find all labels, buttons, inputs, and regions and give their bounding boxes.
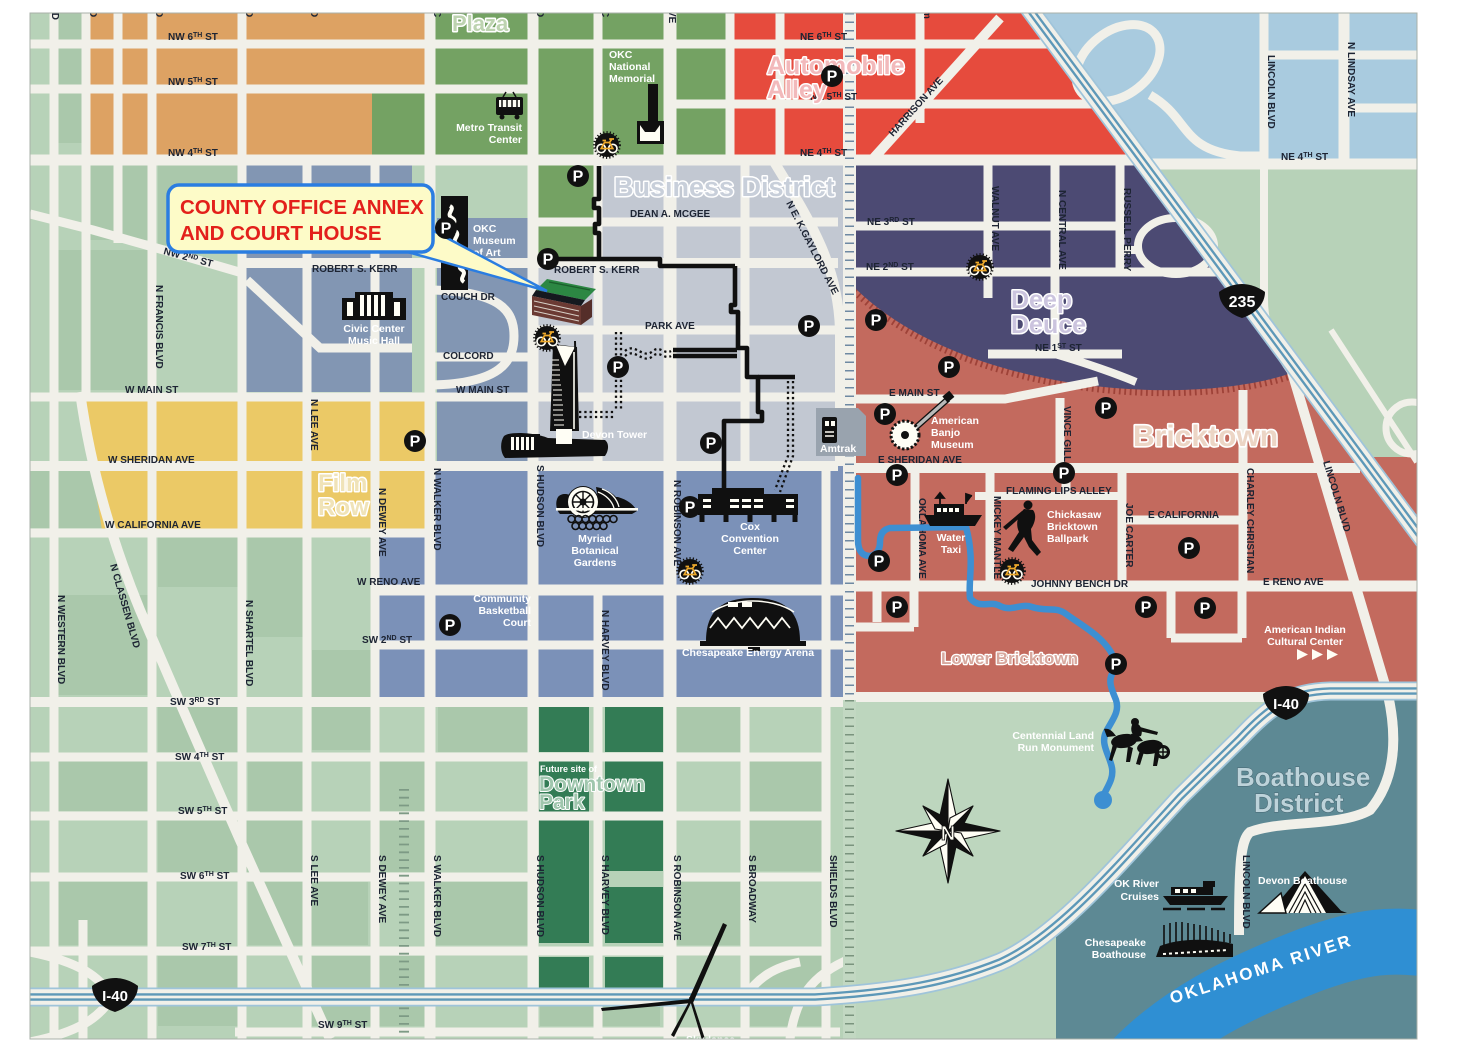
svg-text:Row: Row [318, 494, 369, 521]
svg-text:Lower Bricktown: Lower Bricktown [941, 649, 1078, 668]
svg-text:VINCE GILL: VINCE GILL [1061, 406, 1072, 462]
svg-text:N DEWEY AVE: N DEWEY AVE [376, 488, 387, 557]
svg-text:N FRANCIS BLVD: N FRANCIS BLVD [153, 285, 164, 369]
svg-text:Devon Boathouse: Devon Boathouse [1258, 875, 1347, 887]
svg-text:COUCH DR: COUCH DR [441, 292, 496, 303]
svg-text:Park: Park [539, 791, 585, 814]
svg-text:S HUDSON BLVD: S HUDSON BLVD [534, 465, 545, 547]
svg-text:Skydance: Skydance [686, 1034, 735, 1046]
svg-text:Myriad: Myriad [578, 533, 612, 545]
svg-text:D: D [153, 10, 164, 17]
svg-text:E SHERIDAN AVE: E SHERIDAN AVE [878, 455, 962, 466]
svg-text:S WALKER BLVD: S WALKER BLVD [431, 855, 442, 937]
svg-text:S HARVEY BLVD: S HARVEY BLVD [599, 855, 610, 935]
svg-text:VE: VE [666, 10, 677, 24]
svg-text:Taxi: Taxi [941, 544, 961, 556]
svg-text:District: District [1254, 788, 1344, 818]
svg-text:S DEWEY AVE: S DEWEY AVE [376, 855, 387, 923]
svg-text:W SHERIDAN AVE: W SHERIDAN AVE [108, 455, 195, 466]
svg-text:Cox: Cox [740, 521, 760, 533]
svg-text:N SHARTEL BLVD: N SHARTEL BLVD [243, 600, 254, 686]
svg-text:Museum: Museum [931, 439, 974, 451]
svg-text:N ROBINSON AVE: N ROBINSON AVE [671, 480, 682, 566]
svg-text:N LEE AVE: N LEE AVE [308, 399, 319, 451]
svg-text:LINCOLN BLVD: LINCOLN BLVD [1265, 55, 1276, 129]
svg-text:/D: /D [49, 10, 60, 20]
svg-text:National: National [609, 61, 651, 73]
svg-text:Banjo: Banjo [931, 427, 960, 439]
svg-text:Alley: Alley [767, 76, 827, 104]
svg-text:OKC: OKC [609, 49, 633, 61]
svg-text:S LEE AVE: S LEE AVE [308, 855, 319, 906]
svg-text:S ROBINSON AVE: S ROBINSON AVE [671, 855, 682, 941]
svg-text:S HUDSON BLVD: S HUDSON BLVD [534, 855, 545, 937]
svg-text:Court: Court [503, 617, 531, 629]
svg-text:Chesapeake: Chesapeake [1085, 937, 1146, 949]
svg-text:Community: Community [473, 593, 531, 605]
svg-text:NW 6TH ST: NW 6TH ST [168, 32, 218, 43]
svg-text:D: D [243, 10, 254, 17]
svg-text:Centennial Land: Centennial Land [1012, 730, 1094, 742]
svg-text:E MAIN ST: E MAIN ST [889, 388, 940, 399]
svg-text:NW 4TH ST: NW 4TH ST [168, 148, 218, 159]
svg-text:Civic Center: Civic Center [343, 323, 404, 335]
svg-text:W MAIN ST: W MAIN ST [456, 385, 509, 396]
svg-text:Chesapeake Energy Arena: Chesapeake Energy Arena [682, 647, 814, 659]
svg-text:N WALKER BLVD: N WALKER BLVD [431, 468, 442, 551]
svg-text:N: N [941, 823, 955, 845]
svg-text:OK River: OK River [1114, 878, 1159, 890]
svg-text:I-40: I-40 [1273, 696, 1299, 713]
svg-text:Cruises: Cruises [1120, 891, 1159, 903]
svg-text:Plaza: Plaza [452, 11, 509, 36]
svg-text:Botanical: Botanical [571, 545, 618, 557]
svg-text:W RENO AVE: W RENO AVE [357, 577, 421, 588]
svg-text:Cultural Center: Cultural Center [1267, 636, 1343, 648]
svg-text:COLCORD: COLCORD [443, 351, 494, 362]
svg-text:OKLAHOMA AVE: OKLAHOMA AVE [916, 498, 927, 579]
svg-text:N WESTERN BLVD: N WESTERN BLVD [55, 595, 66, 684]
svg-text:Gardens: Gardens [574, 557, 617, 569]
svg-text:Boathouse: Boathouse [1092, 949, 1146, 961]
svg-text:Film: Film [318, 470, 367, 497]
svg-text:E CALIFORNIA: E CALIFORNIA [1148, 510, 1219, 521]
svg-text:Devon Tower: Devon Tower [582, 429, 647, 441]
svg-text:JOE CARTER: JOE CARTER [1123, 503, 1134, 568]
svg-text:C: C [599, 10, 610, 17]
svg-text:N LINDSAY AVE: N LINDSAY AVE [1345, 42, 1356, 117]
svg-text:m: m [921, 10, 932, 19]
svg-text:Amtrak: Amtrak [820, 443, 856, 455]
svg-text:S BROADWAY: S BROADWAY [746, 855, 757, 923]
svg-text:D: D [87, 10, 98, 17]
svg-text:FLAMING LIPS ALLEY: FLAMING LIPS ALLEY [1006, 486, 1112, 497]
svg-text:Run Monument: Run Monument [1018, 742, 1095, 754]
svg-text:CHARLEY CHRISTIAN: CHARLEY CHRISTIAN [1244, 468, 1255, 573]
svg-text:ROBERT S. KERR: ROBERT S. KERR [312, 264, 398, 275]
svg-text:I-40: I-40 [102, 988, 128, 1005]
svg-text:JOHNNY BENCH DR: JOHNNY BENCH DR [1031, 579, 1129, 590]
svg-text:American: American [931, 415, 979, 427]
svg-text:NW 5TH ST: NW 5TH ST [168, 77, 218, 88]
svg-text:N CENTRAL AVE: N CENTRAL AVE [1056, 190, 1067, 270]
svg-text:Water: Water [937, 532, 966, 544]
svg-text:N HARVEY BLVD: N HARVEY BLVD [599, 610, 610, 691]
svg-text:Bricktown: Bricktown [1133, 420, 1278, 453]
svg-text:W CALIFORNIA AVE: W CALIFORNIA AVE [105, 520, 201, 531]
svg-text:W MAIN ST: W MAIN ST [125, 385, 178, 396]
svg-text:Center: Center [733, 545, 766, 557]
svg-text:WALNUT AVE: WALNUT AVE [989, 186, 1000, 251]
svg-text:MICKEY MANTLE: MICKEY MANTLE [991, 496, 1002, 579]
svg-text:American Indian: American Indian [1264, 624, 1346, 636]
svg-text:D: D [534, 10, 545, 17]
svg-text:Deep: Deep [1011, 286, 1072, 314]
svg-text:ROBERT S. KERR: ROBERT S. KERR [554, 265, 640, 276]
svg-text:LINCOLN BLVD: LINCOLN BLVD [1240, 855, 1251, 929]
svg-text:Music Hall: Music Hall [348, 335, 400, 347]
svg-text:Ballpark: Ballpark [1047, 533, 1089, 545]
svg-text:D: D [308, 10, 319, 17]
svg-text:Bricktown: Bricktown [1047, 521, 1098, 533]
svg-text:PARK AVE: PARK AVE [645, 321, 695, 332]
svg-text:Metro Transit: Metro Transit [456, 122, 522, 134]
svg-text:235: 235 [1229, 294, 1256, 311]
svg-text:C: C [431, 10, 442, 17]
svg-text:Convention: Convention [721, 533, 779, 545]
svg-text:Center: Center [489, 134, 522, 146]
svg-text:AND COURT HOUSE: AND COURT HOUSE [180, 222, 382, 245]
svg-text:DEAN A. MCGEE: DEAN A. MCGEE [630, 209, 711, 220]
svg-text:Memorial: Memorial [609, 73, 655, 85]
svg-text:COUNTY OFFICE ANNEX: COUNTY OFFICE ANNEX [180, 196, 424, 219]
svg-text:Basketball: Basketball [478, 605, 531, 617]
svg-text:Museum: Museum [473, 235, 516, 247]
svg-text:Deuce: Deuce [1011, 311, 1086, 339]
svg-text:Business District: Business District [614, 172, 835, 202]
svg-text:Chickasaw: Chickasaw [1047, 509, 1102, 521]
svg-text:RUSSELL PERRY: RUSSELL PERRY [1121, 188, 1132, 272]
svg-text:E RENO AVE: E RENO AVE [1263, 577, 1324, 588]
svg-text:SHIELDS BLVD: SHIELDS BLVD [827, 855, 838, 928]
svg-text:OKC: OKC [473, 223, 497, 235]
